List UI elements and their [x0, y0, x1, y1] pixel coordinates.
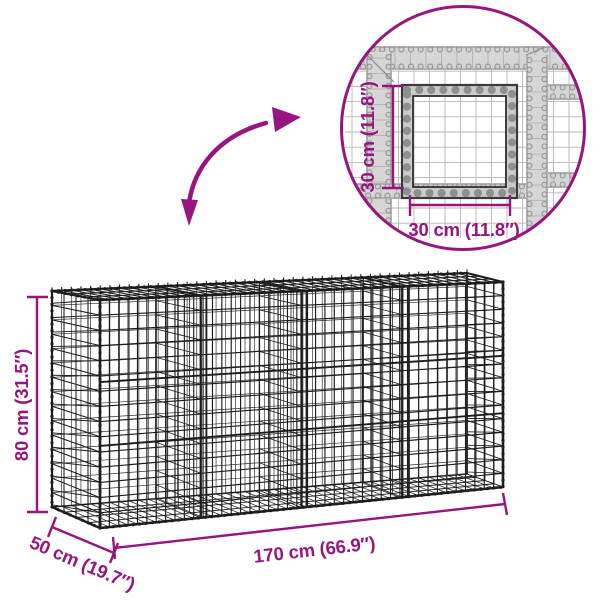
curved-arrow-head-down — [181, 199, 198, 226]
wire-line — [187, 285, 231, 294]
wire-line — [264, 282, 306, 291]
wire-line — [467, 445, 503, 446]
width-dimension-label: 170 cm (66.9″) — [252, 532, 376, 567]
height-dimension: 80 cm (31.5″) — [11, 297, 48, 512]
inset-height-dimension-label: 30 cm (11.8″) — [357, 81, 378, 192]
wire-line — [226, 283, 269, 292]
curved-arrow-arc — [189, 123, 266, 203]
wire-line — [303, 280, 344, 289]
inset-width-dimension-label: 30 cm (11.8″) — [408, 219, 519, 240]
wire-line — [177, 286, 221, 295]
curved-arrow-head-right — [272, 107, 301, 132]
depth-dimension: 50 cm (19.7″) — [27, 517, 139, 595]
wire-line — [216, 284, 259, 293]
wire-line — [293, 281, 334, 290]
product-dimension-diagram: 80 cm (31.5″) 170 cm (66.9″) 50 cm (19.7… — [0, 0, 600, 600]
wire-line — [313, 280, 353, 289]
wire-line — [322, 279, 362, 288]
wire-line — [197, 285, 241, 294]
height-dimension-label: 80 cm (31.5″) — [11, 349, 32, 461]
wire-line — [255, 282, 297, 291]
wire-line — [206, 284, 250, 293]
detail-inset: 30 cm (11.8″) 30 cm (11.8″) — [342, 7, 589, 250]
wire-line — [467, 459, 503, 460]
curved-arrow-icon — [181, 107, 301, 226]
gabion-basket-illustration — [52, 270, 503, 529]
wire-line — [158, 286, 203, 295]
wire-line — [332, 279, 372, 288]
